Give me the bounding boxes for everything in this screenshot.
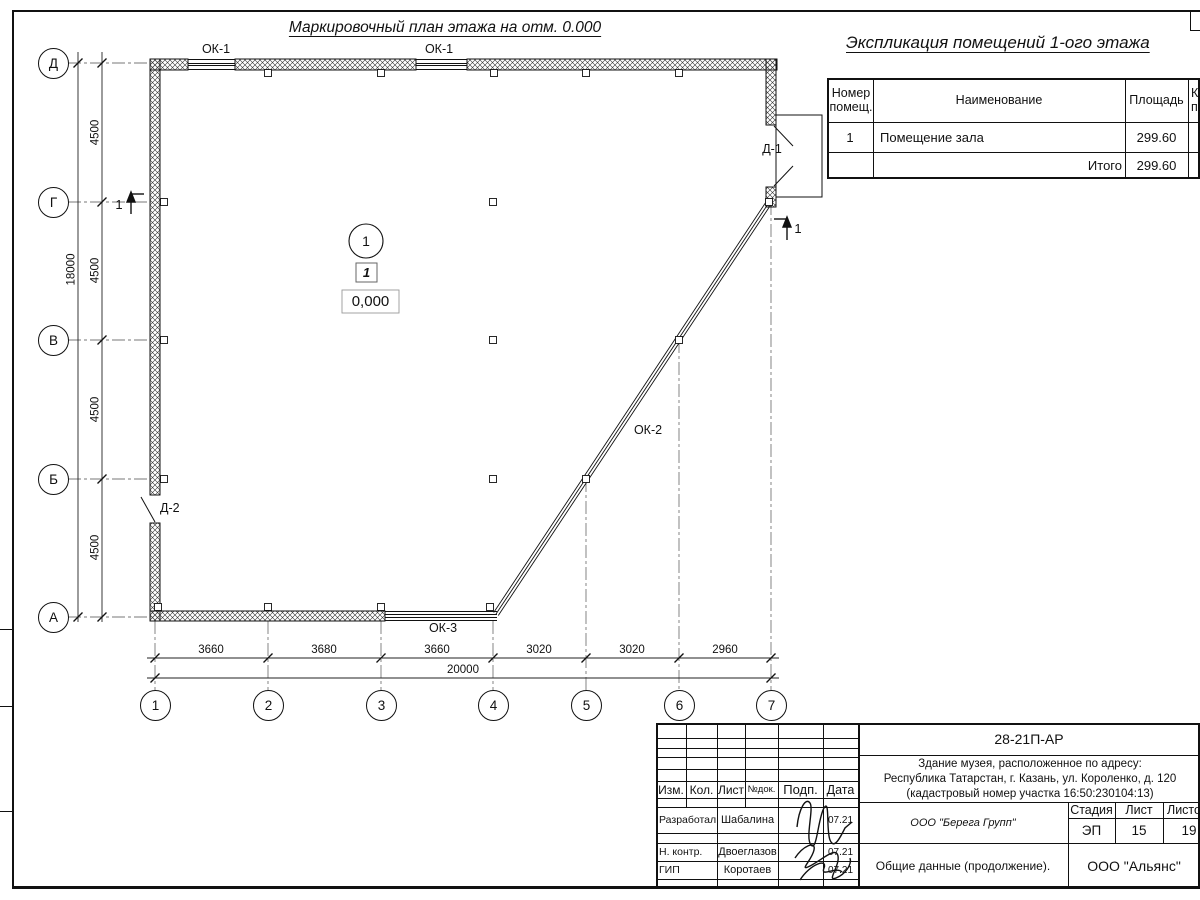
explication-col-number: Номер [829,86,873,100]
explication-col-cut: Ка [1191,86,1200,100]
door-leaves [141,126,793,522]
tb-company: ООО "Берега Групп" [858,802,1068,843]
axis-col-3: 3 [366,690,397,721]
titleblock-line [656,833,858,834]
tb-stage-value: ЭП [1068,818,1115,843]
tb-object-line3: (кадастровый номер участка 16:50:230104:… [860,787,1200,802]
tb-col-podp: Подп. [778,781,823,798]
dimension-lines [78,52,779,678]
tb-sheet-value: 15 [1115,818,1163,843]
tb-name-2: Двоеглазов [717,843,778,861]
tb-sheets-label: Листов [1167,802,1200,818]
explication-col-name: Наименование [873,78,1125,122]
axis-col-6: 6 [664,690,695,721]
axis-row-a: А [38,602,69,633]
dim-3660-1: 3660 [186,643,236,656]
window-label-ok2: ОК-2 [628,423,668,437]
explication-col-area: Площадь [1125,78,1188,122]
window-label-ok1a: ОК-1 [196,42,236,56]
dim-2960: 2960 [700,643,750,656]
axis-row-b: Б [38,464,69,495]
plan-title: Маркировочный план этажа на отм. 0.000 [290,19,600,37]
dim-4500-3: 4500 [89,385,102,435]
door-label-d2: Д-2 [160,501,200,515]
dim-3680: 3680 [299,643,349,656]
level-mark: 0,000 [342,290,399,313]
titleblock-line [858,755,1200,756]
explication-col-number2: помещ. [829,100,873,114]
dim-3660-2: 3660 [412,643,462,656]
tb-doc-name: Общие данные (продолжение). [858,843,1068,888]
tb-col-izm: Изм. [656,781,686,798]
porch-outline [776,115,822,197]
tb-doc-code: 28-21П-АР [858,723,1200,755]
window-lines [188,60,772,621]
dimension-ticks [74,59,776,683]
room-type-mark: 1 [356,263,377,282]
total-area: 299.60 [1125,152,1188,179]
titleblock-line [656,748,858,749]
titleblock-line [656,879,858,880]
tb-col-ndok: №док. [745,781,778,798]
section-marks [127,192,791,240]
tb-role-2: Н. контр. [659,843,716,861]
titleblock-line [656,798,858,799]
dim-4500-4: 4500 [89,523,102,573]
section-number-left: 1 [112,197,126,211]
total-label: Итого [880,152,1122,179]
titleblock-line [656,738,858,739]
axis-col-1: 1 [140,690,171,721]
titleblock-line [656,769,858,770]
tb-col-list: Лист [717,781,745,798]
axis-col-7: 7 [756,690,787,721]
tb-col-data: Дата [823,781,858,798]
dim-4500-1: 4500 [89,108,102,158]
drawing-sheet: Маркировочный план этажа на отм. 0.000 О… [0,0,1200,900]
section-number-right: 1 [791,221,805,235]
tb-name-3: Коротаев [717,861,778,879]
tb-sheets-value: 19 [1163,818,1200,843]
axis-row-g: Г [38,187,69,218]
titleblock-line [656,757,858,758]
axis-col-4: 4 [478,690,509,721]
axis-col-2: 2 [253,690,284,721]
tb-object-line1: Здание музея, расположенное по адресу: [860,757,1200,772]
window-label-ok1b: ОК-1 [419,42,459,56]
tb-object-name: Здание музея, расположенное по адресу: Р… [860,757,1200,802]
tb-role-3: ГИП [659,861,716,879]
tb-name-1: Шабалина [717,807,778,833]
room-number: 1 [349,224,383,258]
tb-role-1: Разработал [659,807,716,833]
tb-date-1: 07.21 [823,807,858,833]
dim-20000: 20000 [438,663,488,676]
dim-18000: 18000 [65,245,78,295]
axis-row-v: В [38,325,69,356]
column-marks [155,70,773,611]
dim-3020-2: 3020 [607,643,657,656]
axis-row-d: Д [38,48,69,79]
window-label-ok3: ОК-3 [423,621,463,635]
dim-4500-2: 4500 [89,246,102,296]
room-row-name: Помещение зала [880,122,1120,152]
axis-col-5: 5 [571,690,602,721]
explication-title: Экспликация помещений 1-ого этажа [846,33,1200,53]
door-label-d1: Д-1 [752,142,792,156]
explication-grid-line [1188,78,1189,179]
explication-col-cut2: по [1191,100,1200,114]
room-row-area: 299.60 [1125,122,1188,152]
dim-3020-1: 3020 [514,643,564,656]
tb-sheet-label: Лист [1115,802,1163,818]
tb-object-line2: Республика Татарстан, г. Казань, ул. Кор… [860,772,1200,787]
tb-stage-label: Стадия [1068,802,1115,818]
tb-date-2: 07.21 [823,843,858,861]
tb-date-3: 07.21 [823,861,858,879]
walls [150,59,777,621]
axis-lines [68,63,771,690]
room-row-number: 1 [827,122,873,152]
tb-col-kol: Кол. [686,781,717,798]
tb-org: ООО "Альянс" [1068,843,1200,888]
